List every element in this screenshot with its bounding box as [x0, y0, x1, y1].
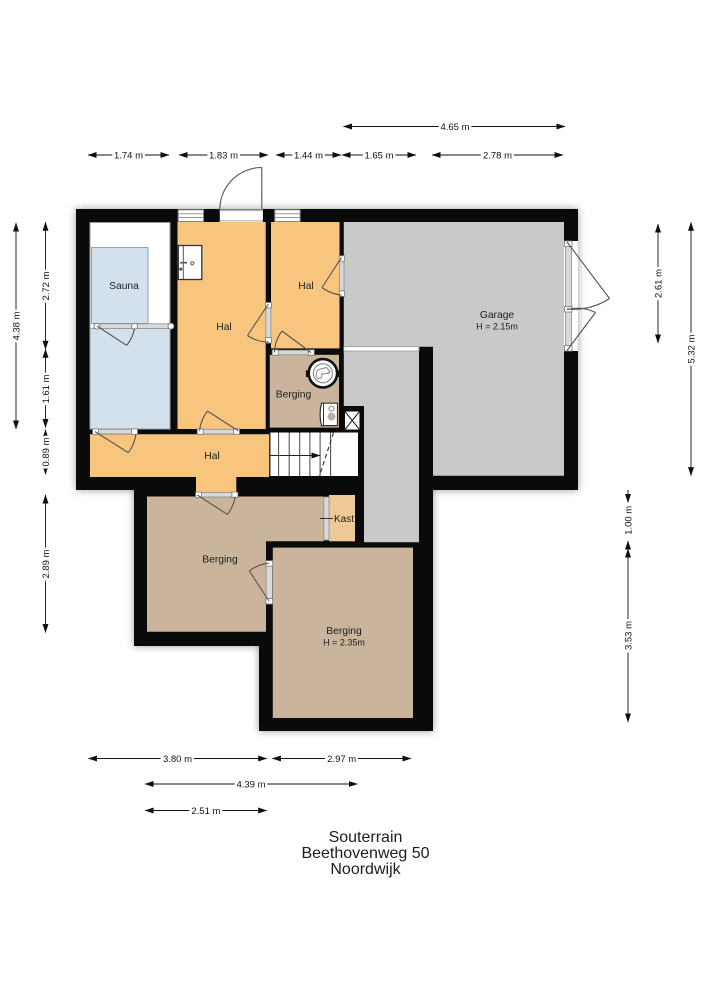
svg-text:Hal: Hal — [298, 281, 313, 292]
svg-text:Beethovenweg 50: Beethovenweg 50 — [301, 845, 429, 862]
svg-text:2.97 m: 2.97 m — [327, 754, 356, 765]
svg-text:4.39 m: 4.39 m — [236, 779, 265, 790]
svg-text:3.80 m: 3.80 m — [163, 754, 192, 765]
svg-text:Noordwijk: Noordwijk — [330, 861, 401, 878]
svg-text:2.61 m: 2.61 m — [653, 269, 664, 298]
svg-text:4.38 m: 4.38 m — [11, 311, 22, 340]
svg-text:1.74 m: 1.74 m — [114, 150, 143, 161]
svg-text:Sauna: Sauna — [109, 281, 139, 292]
svg-text:1.83 m: 1.83 m — [209, 150, 238, 161]
svg-text:0.89 m: 0.89 m — [41, 437, 52, 466]
svg-text:H = 2.35m: H = 2.35m — [323, 638, 365, 648]
svg-text:Kast: Kast — [334, 514, 354, 525]
svg-text:2.89 m: 2.89 m — [41, 549, 52, 578]
svg-text:Souterrain: Souterrain — [329, 829, 403, 846]
svg-text:Berging: Berging — [326, 626, 362, 637]
svg-text:2.78 m: 2.78 m — [483, 150, 512, 161]
svg-text:4.65 m: 4.65 m — [440, 122, 469, 133]
svg-text:1.65 m: 1.65 m — [364, 150, 393, 161]
svg-text:3.53 m: 3.53 m — [623, 621, 634, 650]
svg-text:Berging: Berging — [276, 390, 312, 401]
svg-text:Garage: Garage — [480, 310, 515, 321]
svg-text:Berging: Berging — [202, 555, 238, 566]
svg-text:1.61 m: 1.61 m — [41, 374, 52, 403]
svg-text:1.00 m: 1.00 m — [623, 506, 634, 535]
svg-text:2.72 m: 2.72 m — [41, 271, 52, 300]
svg-text:H = 2.15m: H = 2.15m — [476, 322, 518, 332]
svg-text:1.44 m: 1.44 m — [294, 150, 323, 161]
svg-text:Hal: Hal — [216, 322, 231, 333]
svg-text:5.32 m: 5.32 m — [686, 334, 697, 363]
svg-text:2.51 m: 2.51 m — [191, 806, 220, 817]
svg-text:Hal: Hal — [204, 451, 219, 462]
